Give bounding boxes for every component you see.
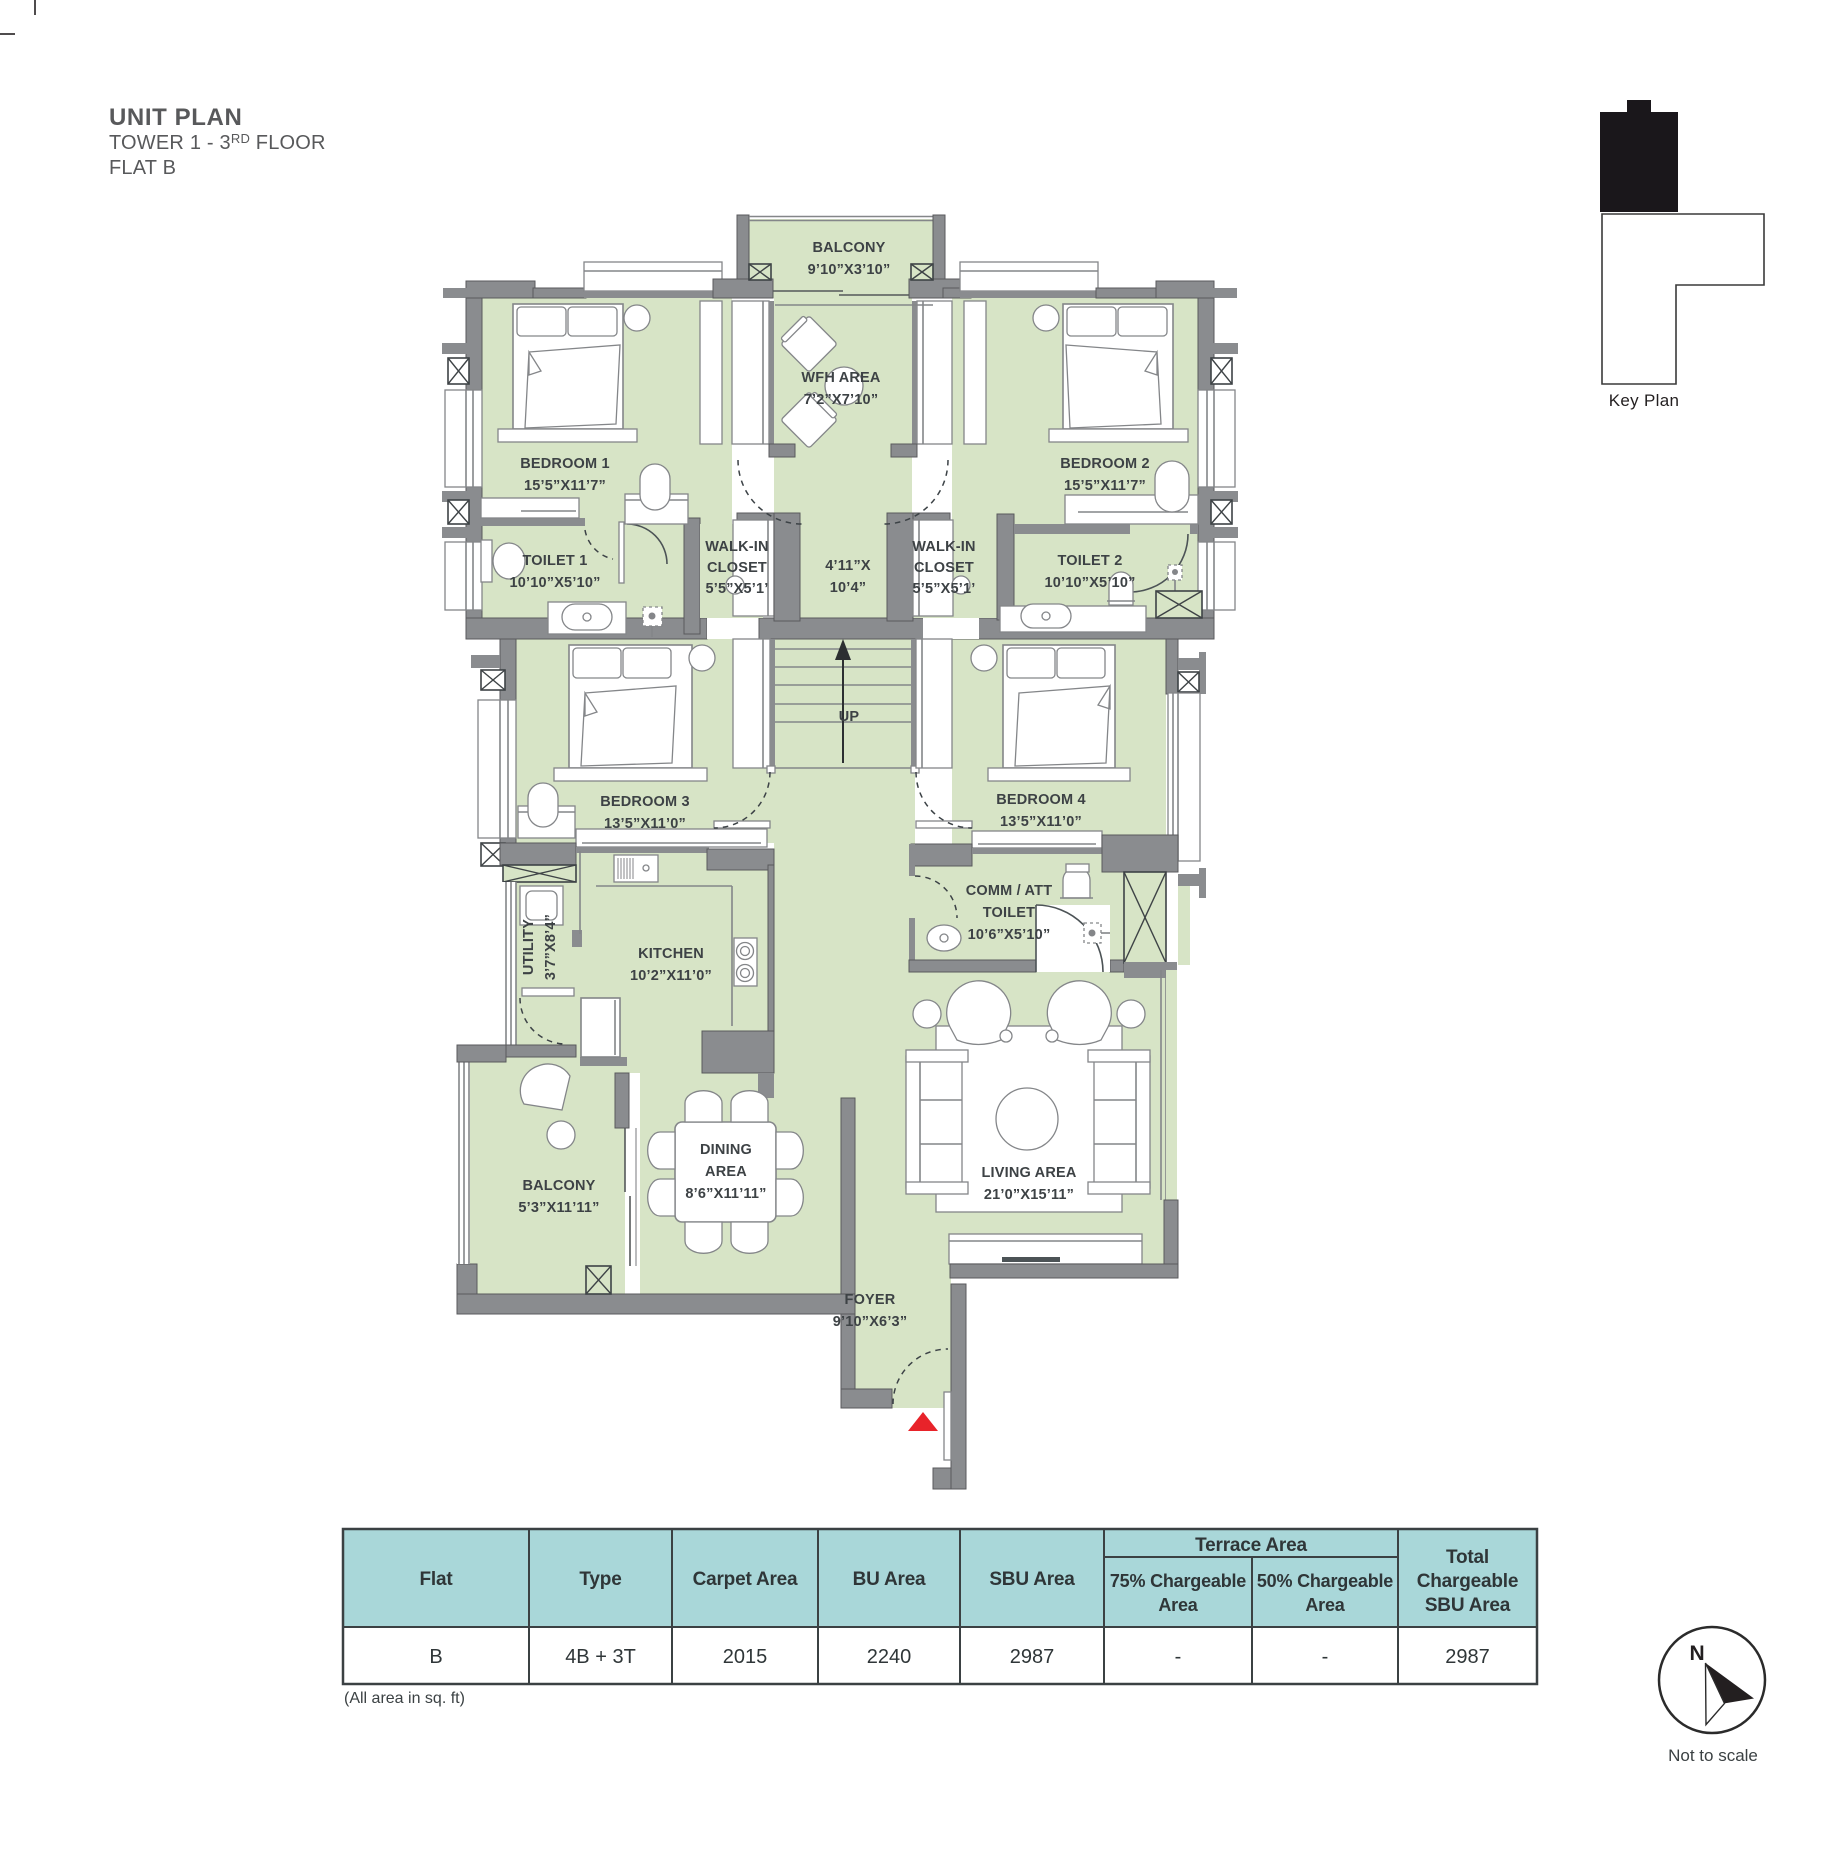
svg-text:UNIT PLAN: UNIT PLAN bbox=[109, 104, 242, 131]
svg-text:2240: 2240 bbox=[867, 1646, 912, 1668]
svg-text:Area: Area bbox=[1158, 1595, 1198, 1615]
svg-text:Key Plan: Key Plan bbox=[1609, 391, 1679, 410]
svg-text:4B + 3T: 4B + 3T bbox=[565, 1646, 636, 1668]
svg-text:BEDROOM 4: BEDROOM 4 bbox=[996, 792, 1086, 808]
svg-text:2987: 2987 bbox=[1010, 1646, 1055, 1668]
svg-text:SBU Area: SBU Area bbox=[1425, 1595, 1511, 1616]
svg-text:10’10”X5’10”: 10’10”X5’10” bbox=[509, 575, 600, 591]
svg-text:WFH AREA: WFH AREA bbox=[801, 370, 881, 386]
svg-text:WALK-IN: WALK-IN bbox=[705, 539, 768, 555]
svg-text:7’2”X7’10”: 7’2”X7’10” bbox=[804, 392, 879, 408]
svg-text:8’6”X11’11”: 8’6”X11’11” bbox=[685, 1186, 766, 1202]
svg-text:5’3”X11’11”: 5’3”X11’11” bbox=[518, 1200, 599, 1216]
svg-text:21’0”X15’11”: 21’0”X15’11” bbox=[984, 1187, 1074, 1203]
svg-text:B: B bbox=[429, 1646, 442, 1668]
svg-text:2987: 2987 bbox=[1445, 1646, 1490, 1668]
svg-text:CLOSET: CLOSET bbox=[914, 560, 974, 576]
svg-text:Terrace Area: Terrace Area bbox=[1195, 1535, 1307, 1556]
svg-text:Area: Area bbox=[1305, 1595, 1345, 1615]
svg-text:10’2”X11’0”: 10’2”X11’0” bbox=[630, 968, 712, 984]
svg-text:75% Chargeable: 75% Chargeable bbox=[1110, 1571, 1246, 1591]
svg-text:3’7”X8’4”: 3’7”X8’4” bbox=[543, 914, 559, 980]
svg-text:Not to scale: Not to scale bbox=[1668, 1746, 1758, 1765]
svg-text:4’11”X: 4’11”X bbox=[825, 558, 871, 574]
svg-text:9’10”X3’10”: 9’10”X3’10” bbox=[808, 262, 891, 278]
svg-text:N: N bbox=[1690, 1642, 1705, 1665]
svg-text:TOWER 1 - 3RD FLOOR: TOWER 1 - 3RD FLOOR bbox=[109, 131, 326, 154]
svg-text:SBU Area: SBU Area bbox=[989, 1569, 1075, 1590]
svg-text:DINING: DINING bbox=[700, 1142, 752, 1158]
svg-text:13’5”X11’0”: 13’5”X11’0” bbox=[1000, 814, 1082, 830]
svg-text:BALCONY: BALCONY bbox=[812, 240, 885, 256]
svg-text:2015: 2015 bbox=[723, 1646, 768, 1668]
svg-text:-: - bbox=[1175, 1646, 1182, 1668]
svg-text:BEDROOM 2: BEDROOM 2 bbox=[1060, 456, 1150, 472]
svg-text:FLAT B: FLAT B bbox=[109, 157, 176, 179]
svg-text:13’5”X11’0”: 13’5”X11’0” bbox=[604, 816, 686, 832]
svg-text:Total: Total bbox=[1446, 1547, 1489, 1568]
svg-text:15’5”X11’7”: 15’5”X11’7” bbox=[524, 478, 606, 494]
svg-text:Carpet Area: Carpet Area bbox=[693, 1569, 798, 1590]
svg-text:UTILITY: UTILITY bbox=[521, 919, 537, 975]
svg-text:LIVING AREA: LIVING AREA bbox=[981, 1165, 1076, 1181]
svg-text:Type: Type bbox=[579, 1569, 621, 1590]
svg-text:UP: UP bbox=[839, 709, 860, 725]
svg-text:BALCONY: BALCONY bbox=[522, 1178, 595, 1194]
svg-text:TOILET 2: TOILET 2 bbox=[1058, 553, 1123, 569]
svg-text:9’10”X6’3”: 9’10”X6’3” bbox=[833, 1314, 908, 1330]
svg-text:TOILET 1: TOILET 1 bbox=[523, 553, 588, 569]
svg-text:BEDROOM 3: BEDROOM 3 bbox=[600, 794, 690, 810]
svg-text:-: - bbox=[1322, 1646, 1329, 1668]
svg-text:BEDROOM 1: BEDROOM 1 bbox=[520, 456, 610, 472]
svg-text:15’5”X11’7”: 15’5”X11’7” bbox=[1064, 478, 1146, 494]
svg-text:5’5”X5’1’: 5’5”X5’1’ bbox=[705, 581, 768, 597]
svg-text:WALK-IN: WALK-IN bbox=[912, 539, 975, 555]
svg-text:10’10”X5’10”: 10’10”X5’10” bbox=[1044, 575, 1135, 591]
svg-text:FOYER: FOYER bbox=[845, 1292, 896, 1308]
svg-text:CLOSET: CLOSET bbox=[707, 560, 767, 576]
svg-text:KITCHEN: KITCHEN bbox=[638, 946, 704, 962]
svg-text:Chargeable: Chargeable bbox=[1417, 1571, 1518, 1592]
svg-text:COMM / ATT: COMM / ATT bbox=[966, 883, 1053, 899]
svg-text:10’6”X5’10”: 10’6”X5’10” bbox=[968, 927, 1051, 943]
svg-text:5’5”X5’1’: 5’5”X5’1’ bbox=[912, 581, 975, 597]
svg-text:Flat: Flat bbox=[420, 1569, 454, 1590]
svg-text:(All area in sq. ft): (All area in sq. ft) bbox=[344, 1690, 465, 1707]
svg-text:50% Chargeable: 50% Chargeable bbox=[1257, 1571, 1393, 1591]
svg-text:AREA: AREA bbox=[705, 1164, 747, 1180]
svg-text:BU Area: BU Area bbox=[853, 1569, 926, 1590]
svg-text:TOILET: TOILET bbox=[983, 905, 1036, 921]
svg-text:10’4”: 10’4” bbox=[830, 580, 866, 596]
